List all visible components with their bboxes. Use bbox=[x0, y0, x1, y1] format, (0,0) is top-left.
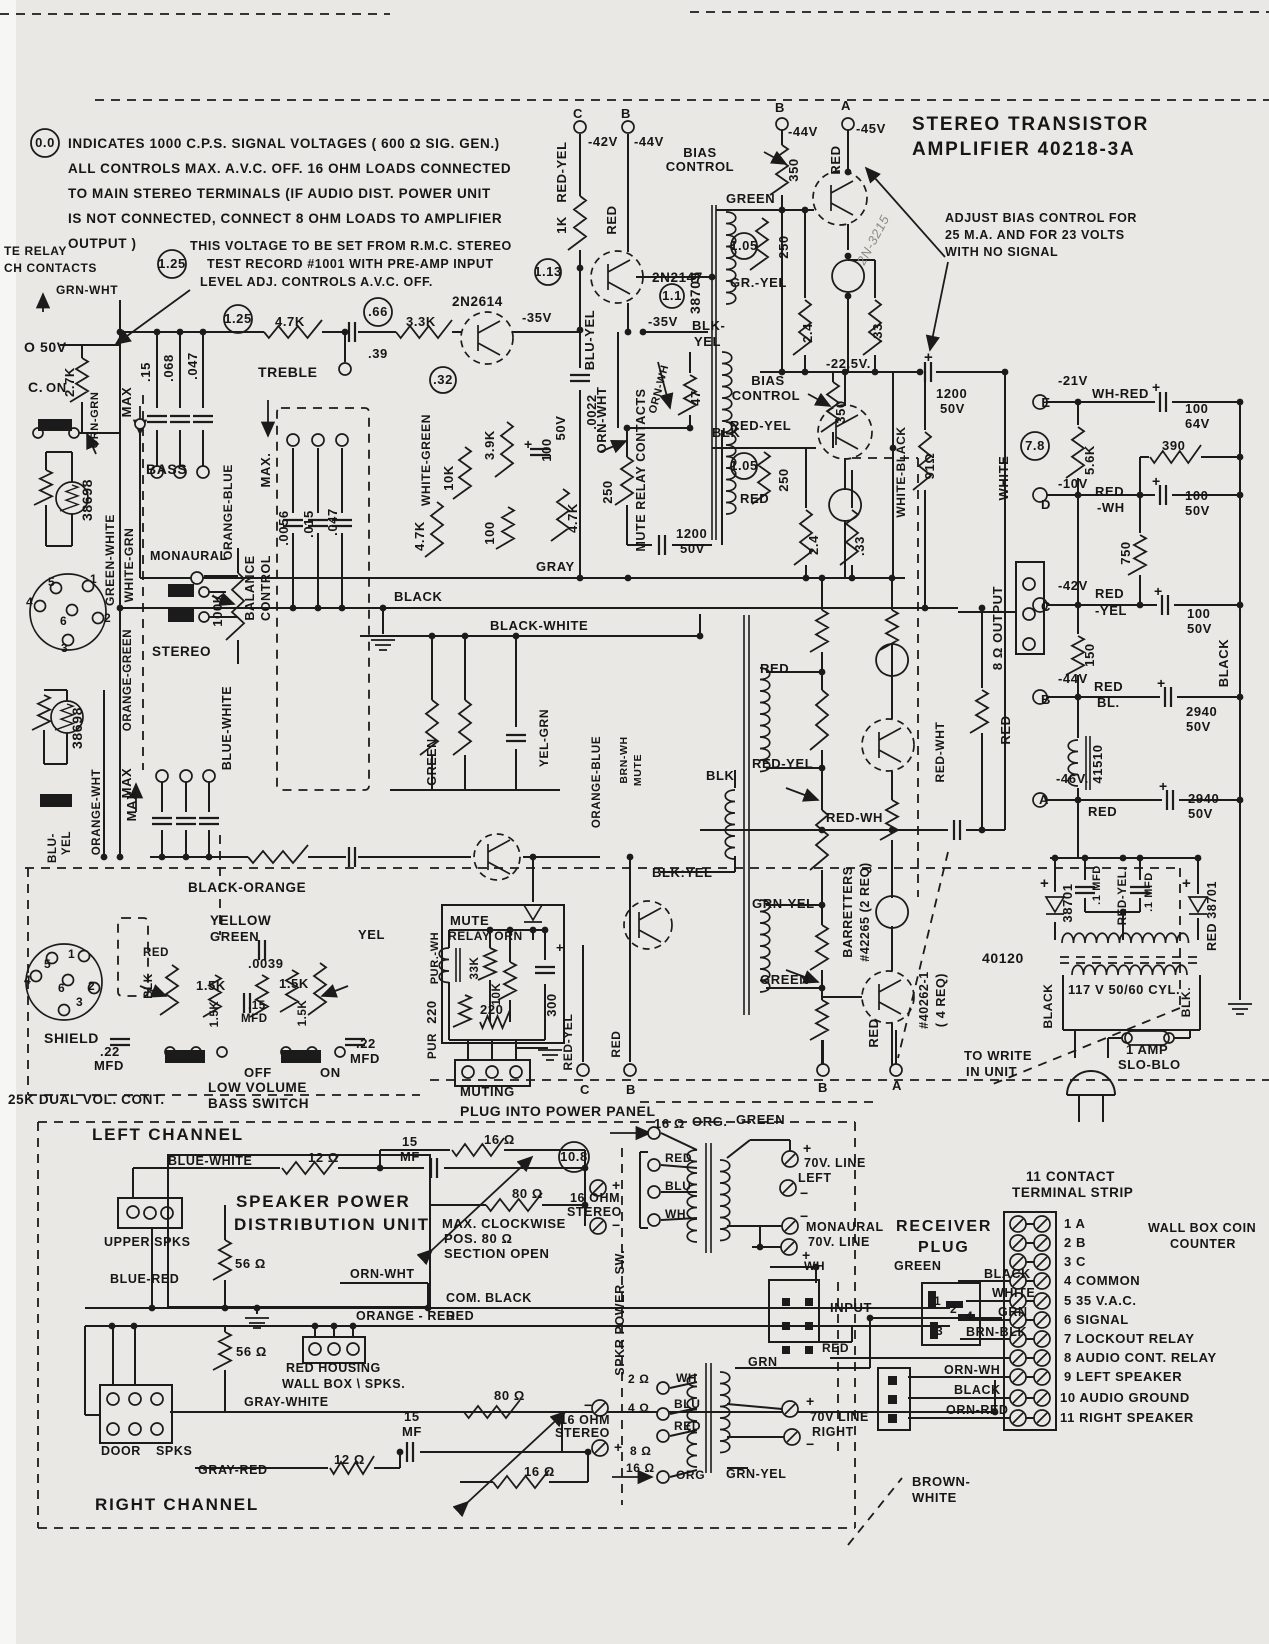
schematic-label: STEREO bbox=[555, 1426, 610, 1440]
schematic-label: WHITE bbox=[912, 1490, 957, 1505]
schematic-label: IN UNIT bbox=[966, 1064, 1017, 1079]
schematic-label: MONAURAL bbox=[150, 549, 228, 563]
schematic-label: MONAURAL bbox=[806, 1220, 884, 1234]
schematic-label: WALL BOX \ SPKS. bbox=[282, 1377, 405, 1391]
schematic-label: 3.3K bbox=[406, 314, 436, 329]
schematic-label: ON bbox=[320, 1065, 341, 1080]
schematic-label: RED bbox=[609, 1030, 623, 1057]
schematic-label: RED bbox=[604, 205, 619, 234]
schematic-label: COM. BLACK bbox=[446, 1291, 532, 1305]
section-spdu-2: DISTRIBUTION UNIT bbox=[234, 1215, 430, 1234]
schematic-label: BRN-WH bbox=[618, 736, 630, 783]
schematic-label: 50V bbox=[680, 541, 705, 556]
schematic-label: 10K bbox=[441, 465, 456, 491]
note-voltage-2: TEST RECORD #1001 WITH PRE-AMP INPUT bbox=[207, 257, 494, 271]
schematic-label: 4.7K bbox=[565, 503, 580, 533]
schematic-label: -WH bbox=[1097, 500, 1125, 515]
schematic-label: 15 bbox=[404, 1409, 420, 1424]
schematic-label: 2N2147 bbox=[652, 270, 703, 285]
schematic-label: MAX. bbox=[258, 453, 273, 488]
terminal-row-2: 2 B bbox=[1064, 1235, 1086, 1250]
schematic-label: 1.05 bbox=[730, 238, 758, 253]
schematic-label: RED bbox=[665, 1151, 692, 1165]
schematic-label: .32 bbox=[433, 372, 453, 387]
schematic-label: RED bbox=[446, 1309, 474, 1323]
schematic-label: 117 V 50/60 CYL. bbox=[1068, 982, 1180, 997]
schematic-label: 2 bbox=[950, 1302, 957, 1316]
schematic-label: 8 Ω bbox=[630, 1444, 651, 1458]
schematic-label: 1.25 bbox=[158, 256, 186, 271]
schematic-label: .0039 bbox=[248, 956, 284, 971]
schematic-label: − bbox=[612, 1217, 621, 1233]
schematic-label: 2.4 bbox=[800, 323, 815, 343]
schematic-label: 15 bbox=[402, 1134, 418, 1149]
note-signal-1: INDICATES 1000 C.P.S. SIGNAL VOLTAGES ( … bbox=[68, 136, 500, 151]
schematic-label: 250 bbox=[600, 480, 615, 504]
note-signal-3: TO MAIN STEREO TERMINALS (IF AUDIO DIST.… bbox=[68, 186, 491, 201]
schematic-label: GRN bbox=[748, 1355, 778, 1369]
schematic-label: INPUT bbox=[830, 1300, 872, 1315]
schematic-label: 8 Ω OUTPUT bbox=[990, 586, 1005, 670]
schematic-label: BLK bbox=[712, 425, 741, 440]
note-voltage-3: LEVEL ADJ. CONTROLS A.V.C. OFF. bbox=[200, 275, 433, 289]
schematic-label: -42V bbox=[1058, 578, 1088, 593]
schematic-label: RED 38701 bbox=[1205, 881, 1219, 951]
schematic-label: RED bbox=[740, 491, 769, 506]
schematic-label: LEFT bbox=[798, 1171, 832, 1185]
schematic-label: -10V bbox=[1058, 476, 1088, 491]
schematic-label: + bbox=[556, 940, 564, 955]
schematic-label: MUTE bbox=[450, 913, 489, 928]
schematic-label: 220 bbox=[424, 1000, 439, 1024]
schematic-label: 16 OHM bbox=[570, 1191, 620, 1205]
schematic-label: 1.25 bbox=[224, 311, 252, 326]
section-spdu-1: SPEAKER POWER bbox=[236, 1192, 411, 1211]
schematic-label: YEL bbox=[61, 831, 73, 855]
schematic-label: -44V bbox=[1058, 671, 1088, 686]
schematic-label: BLK bbox=[143, 973, 155, 999]
schematic-label: 3 bbox=[61, 641, 68, 655]
schematic-label: BLU- bbox=[47, 833, 59, 863]
schematic-label: SECTION OPEN bbox=[444, 1246, 549, 1261]
schematic-label: GREEN bbox=[726, 191, 775, 206]
schematic-label: E bbox=[1041, 395, 1050, 410]
schematic-label: GREEN bbox=[760, 972, 809, 987]
schematic-label: COUNTER bbox=[1170, 1237, 1236, 1251]
schematic-label: WHITE bbox=[996, 456, 1011, 501]
schematic-label: PUR.-WH bbox=[429, 932, 441, 984]
schematic-label: BASS bbox=[146, 461, 187, 477]
schematic-label: BASS SWITCH bbox=[208, 1096, 309, 1111]
schematic-label: POS. 80 Ω bbox=[444, 1231, 513, 1246]
schematic-label: 38698 bbox=[79, 479, 95, 521]
schematic-label: + bbox=[614, 1439, 623, 1455]
schematic-label: GRN-YEL bbox=[752, 896, 815, 911]
schematic-label: GRAY-RED bbox=[198, 1463, 268, 1477]
schematic-label: #40262-1 bbox=[917, 971, 931, 1029]
schematic-label: 250 bbox=[776, 468, 791, 492]
schematic-label: + bbox=[1040, 875, 1049, 892]
section-plug-power-panel: PLUG INTO POWER PANEL bbox=[460, 1103, 656, 1119]
schematic-label: TREBLE bbox=[258, 364, 318, 380]
schematic-label: BALANCE bbox=[243, 555, 257, 620]
schematic-label: 1200 bbox=[936, 386, 967, 401]
schematic-label: .068 bbox=[161, 354, 176, 382]
schematic-label: SPKR POWER bbox=[613, 1284, 627, 1375]
schematic-label: GREEN bbox=[894, 1259, 941, 1273]
schematic-label: 70V LINE bbox=[810, 1410, 869, 1424]
note-signal-4: IS NOT CONNECTED, CONNECT 8 OHM LOADS TO… bbox=[68, 211, 502, 226]
terminal-row-5: 5 35 V.A.C. bbox=[1064, 1293, 1137, 1308]
schematic-label: 16 Ω bbox=[524, 1464, 555, 1479]
schematic-label: 3.9K bbox=[482, 430, 497, 460]
schematic-label: 2 Ω bbox=[628, 1372, 649, 1386]
schematic-label: GREEN bbox=[210, 929, 259, 944]
schematic-label: MUTE RELAY CONTACTS bbox=[634, 388, 648, 551]
schematic-label: BIAS bbox=[751, 373, 784, 388]
schematic-label: ORANGE-BLUE bbox=[591, 736, 603, 828]
schematic-label: 100 bbox=[539, 438, 554, 462]
schematic-label: RED bbox=[1095, 586, 1124, 601]
schematic-label: A bbox=[841, 98, 851, 113]
schematic-label: 100 bbox=[1187, 606, 1211, 621]
schematic-label: -44V bbox=[788, 124, 818, 139]
terminal-row-7: 7 LOCKOUT RELAY bbox=[1064, 1331, 1195, 1346]
schematic-label: 2 bbox=[88, 979, 95, 993]
schematic-label: ORN-WHT bbox=[350, 1267, 415, 1281]
schematic-label: MAX bbox=[124, 791, 139, 822]
schematic-title-line1: STEREO TRANSISTOR bbox=[912, 114, 1149, 135]
terminal-row-11: 11 RIGHT SPEAKER bbox=[1060, 1410, 1194, 1425]
schematic-label: − bbox=[584, 1397, 593, 1413]
schematic-label: 1.1 bbox=[662, 288, 682, 303]
schematic-label: BLK:YEL bbox=[652, 865, 713, 880]
schematic-label: BLACK bbox=[954, 1383, 1001, 1397]
terminal-row-1: 1 A bbox=[1064, 1216, 1086, 1231]
schematic-label: + bbox=[924, 349, 933, 366]
schematic-label: 3 bbox=[936, 1324, 943, 1338]
schematic-label: RED bbox=[1094, 679, 1123, 694]
schematic-label: RED HOUSING bbox=[286, 1361, 381, 1375]
schematic-label: GREEN-WHITE bbox=[103, 514, 117, 606]
schematic-label: DOOR bbox=[101, 1444, 141, 1458]
schematic-label: .33 bbox=[870, 323, 885, 343]
section-receiver-plug-2: PLUG bbox=[918, 1239, 970, 1256]
schematic-label: 2.7K bbox=[62, 367, 77, 397]
schematic-label: 1.5K bbox=[209, 1001, 221, 1028]
section-right-channel: RIGHT CHANNEL bbox=[95, 1495, 259, 1514]
schematic-label: 16 OHM bbox=[560, 1413, 610, 1427]
terminal-row-6: 6 SIGNAL bbox=[1064, 1312, 1129, 1327]
schematic-label: -45V bbox=[856, 121, 886, 136]
schematic-label: GR.-YEL bbox=[730, 275, 787, 290]
schematic-label: + bbox=[1182, 875, 1191, 892]
schematic-label: 80 Ω bbox=[512, 1186, 543, 1201]
schematic-label: GRAY-WHITE bbox=[244, 1395, 329, 1409]
schematic-label: BL. bbox=[1097, 695, 1120, 710]
schematic-label: 100 bbox=[1185, 401, 1209, 416]
schematic-label: 38701 bbox=[1060, 883, 1075, 922]
schematic-label: WALL BOX COIN bbox=[1148, 1221, 1256, 1235]
schematic-label: BLUE-WHITE bbox=[168, 1154, 252, 1168]
schematic-label: 4.7K bbox=[412, 521, 427, 551]
schematic-label: 50V bbox=[1187, 621, 1212, 636]
terminal-row-3: 3 C bbox=[1064, 1254, 1086, 1269]
schematic-label: A bbox=[1039, 792, 1049, 807]
schematic-label: 12 Ω bbox=[334, 1452, 365, 1467]
schematic-label: − bbox=[800, 1185, 809, 1201]
schematic-label: WH bbox=[665, 1207, 686, 1221]
schematic-label: 16 Ω bbox=[484, 1132, 515, 1147]
schematic-label: -46V. bbox=[1056, 771, 1089, 786]
schematic-label: SHIELD bbox=[44, 1030, 99, 1046]
schematic-label: ORG bbox=[676, 1468, 705, 1482]
schematic-label: + bbox=[806, 1393, 815, 1409]
schematic-label: GRN-YEL bbox=[726, 1467, 786, 1481]
schematic-label: ORN-RED bbox=[946, 1403, 1009, 1417]
schematic-label: 12 Ω bbox=[308, 1150, 339, 1165]
schematic-label: RED bbox=[998, 715, 1013, 744]
schematic-label: B bbox=[1041, 692, 1051, 707]
schematic-label: ORANGE - RED bbox=[356, 1309, 456, 1323]
section-left-channel: LEFT CHANNEL bbox=[92, 1125, 244, 1144]
note-signal-5: OUTPUT ) bbox=[68, 236, 137, 251]
schematic-label: 390 bbox=[1162, 438, 1186, 453]
schematic-label: O 50V bbox=[24, 339, 67, 355]
schematic-label: .22 bbox=[356, 1036, 376, 1051]
schematic-label: ORN-WH bbox=[944, 1363, 1000, 1377]
schematic-label: .66 bbox=[368, 304, 388, 319]
schematic-label: -22.5V. bbox=[826, 356, 871, 371]
schematic-label: RED-WH bbox=[826, 810, 883, 825]
schematic-label: 38698 bbox=[69, 707, 85, 749]
schematic-label: RED bbox=[760, 661, 789, 676]
schematic-label: 250 bbox=[776, 235, 791, 259]
schematic-label: .33 bbox=[852, 536, 867, 556]
schematic-label: + bbox=[1152, 379, 1161, 395]
schematic-label: -35V bbox=[522, 310, 552, 325]
schematic-label: 6 bbox=[58, 981, 65, 995]
schematic-label: .39 bbox=[368, 346, 388, 361]
schematic-label: WHITE-GRN bbox=[122, 528, 136, 603]
schematic-label: BLU bbox=[665, 1179, 691, 1193]
schematic-label: WH-RED bbox=[1092, 386, 1149, 401]
schematic-label: SPKS bbox=[156, 1444, 192, 1458]
schematic-label: MF bbox=[402, 1424, 422, 1439]
schematic-label: .15 bbox=[138, 362, 153, 382]
note-voltage-1: THIS VOLTAGE TO BE SET FROM R.M.C. STERE… bbox=[190, 239, 512, 253]
schematic-label: GRN bbox=[998, 1305, 1028, 1319]
schematic-label: 25K DUAL VOL. CONT. bbox=[8, 1092, 165, 1107]
schematic-label: RIGHT bbox=[812, 1425, 854, 1439]
schematic-label: .0022 bbox=[584, 394, 599, 430]
schematic-label: 80 Ω bbox=[494, 1388, 525, 1403]
schematic-label: 7.8 bbox=[1025, 438, 1045, 453]
schematic-label: .22 bbox=[100, 1044, 120, 1059]
schematic-label: WH bbox=[804, 1259, 825, 1273]
schematic-label: RELAY ORN bbox=[448, 929, 523, 943]
schematic-label: 56 Ω bbox=[235, 1256, 266, 1271]
wires-layer bbox=[43, 130, 1240, 1502]
schematic-label: 1K bbox=[554, 216, 569, 234]
schematic-label: OFF bbox=[244, 1065, 272, 1080]
schematic-label: YELLOW bbox=[210, 913, 271, 928]
schematic-label: 2 bbox=[104, 611, 111, 625]
schematic-label: 64V bbox=[1185, 416, 1210, 431]
schematic-label: SW. bbox=[613, 1250, 627, 1275]
schematic-label: RED bbox=[1095, 484, 1124, 499]
note-bias-2: 25 M.A. AND FOR 23 VOLTS bbox=[945, 228, 1125, 242]
schematic-label: B bbox=[626, 1082, 636, 1097]
schematic-label: .047 bbox=[325, 508, 340, 536]
schematic-label: BLUE-WHITE bbox=[220, 686, 234, 770]
schematic-label: WHITE bbox=[992, 1286, 1035, 1300]
schematic-label: MFD bbox=[241, 1013, 268, 1025]
schematic-label: 50V bbox=[1185, 503, 1210, 518]
schematic-label: 1.5K bbox=[297, 1000, 309, 1027]
schematic-label: 91Ω bbox=[922, 453, 937, 480]
schematic-label: A bbox=[892, 1078, 902, 1093]
schematic-label: 1.13 bbox=[534, 264, 562, 279]
schematic-label: 50V bbox=[1188, 806, 1213, 821]
schematic-label: WHITE-GREEN bbox=[419, 414, 433, 506]
schematic-label: ORN-WH bbox=[647, 363, 672, 414]
note-signal-2: ALL CONTROLS MAX. A.V.C. OFF. 16 OHM LOA… bbox=[68, 161, 511, 176]
schematic-label: RED-YEL. bbox=[1117, 867, 1129, 925]
schematic-label: 6 bbox=[60, 614, 67, 628]
schematic-label: BLK bbox=[706, 768, 735, 783]
schematic-label: C bbox=[580, 1082, 590, 1097]
schematic-label: 16 Ω bbox=[626, 1461, 655, 1475]
schematic-label: WHITE-BLACK bbox=[894, 426, 908, 517]
note-bias-3: WITH NO SIGNAL bbox=[945, 245, 1058, 259]
schematic-label: 350 bbox=[833, 400, 848, 424]
schematic-label: .1 MFD bbox=[1143, 872, 1155, 912]
schematic-label: 1.05 bbox=[730, 458, 758, 473]
schematic-label: 2N2614 bbox=[452, 294, 503, 309]
schematic-label: TE RELAY bbox=[4, 244, 67, 258]
schematic-label: RED-YEL bbox=[554, 141, 569, 202]
schematic-label: ORN-GRN bbox=[89, 392, 101, 449]
scanned-schematic-page: STEREO TRANSISTOR AMPLIFIER 40218-3A 0.0… bbox=[0, 0, 1269, 1644]
schematic-label: SLO-BLO bbox=[1118, 1057, 1181, 1072]
schematic-label: CONTROL bbox=[732, 388, 800, 403]
schematic-label: BLACK-ORANGE bbox=[188, 880, 306, 895]
schematic-label: .0056 bbox=[276, 510, 291, 546]
schematic-label: MUTING bbox=[460, 1084, 515, 1099]
schematic-label: CONTROL bbox=[666, 159, 734, 174]
schematic-label: BLK. bbox=[1179, 987, 1193, 1017]
schematic-label: UPPER SPKS bbox=[104, 1235, 191, 1249]
schematic-label: PUR bbox=[427, 1033, 439, 1059]
schematic-label: 2940 bbox=[1186, 704, 1217, 719]
schematic-label: LOW VOLUME bbox=[208, 1080, 307, 1095]
schematic-label: MFD bbox=[94, 1058, 124, 1073]
terminal-row-4: 4 COMMON bbox=[1064, 1273, 1140, 1288]
schematic-label: + bbox=[1152, 473, 1161, 489]
schematic-label: 70V. LINE bbox=[808, 1235, 870, 1249]
note-bias-1: ADJUST BIAS CONTROL FOR bbox=[945, 211, 1137, 225]
schematic-label: MAX. CLOCKWISE bbox=[442, 1216, 566, 1231]
schematic-label: GREEN bbox=[425, 738, 439, 785]
schematic-label: GRAY bbox=[536, 559, 575, 574]
schematic-label: 1 bbox=[934, 1294, 941, 1308]
schematic-label: 16 Ω bbox=[654, 1116, 685, 1131]
schematic-label: 300 bbox=[544, 993, 559, 1017]
schematic-label: WH bbox=[676, 1371, 697, 1385]
schematic-label: RED-YEL bbox=[752, 756, 813, 771]
schematic-label: 100 bbox=[1185, 488, 1209, 503]
schematic-label: -YEL bbox=[1095, 603, 1127, 618]
terminal-row-8: 8 AUDIO CONT. RELAY bbox=[1064, 1350, 1217, 1365]
schematic-label: CONTROL bbox=[259, 555, 273, 621]
schematic-label: BLACK bbox=[1041, 984, 1055, 1029]
schematic-label: BLU-YEL bbox=[582, 310, 597, 371]
schematic-label: ORANGE-GREEN bbox=[122, 629, 134, 731]
schematic-label: 5 bbox=[48, 575, 55, 589]
schematic-label: + bbox=[1157, 675, 1166, 691]
schematic-label: -21V bbox=[1058, 373, 1088, 388]
schematic-label: 5.6K bbox=[1082, 445, 1097, 475]
schematic-label: BLACK bbox=[1216, 639, 1231, 688]
schematic-label: 4 bbox=[24, 973, 31, 987]
schematic-label: 41510 bbox=[1090, 744, 1105, 783]
schematic-label: BLK- bbox=[692, 318, 725, 333]
schematic-label: RED bbox=[828, 145, 843, 174]
schematic-label: RED-WHT bbox=[933, 722, 947, 783]
schematic-label: -44V bbox=[634, 134, 664, 149]
schematic-label: TO WRITE bbox=[964, 1048, 1032, 1063]
schematic-label: 56 Ω bbox=[236, 1344, 267, 1359]
schematic-label: .047 bbox=[185, 352, 200, 380]
schematic-label: YEL bbox=[694, 334, 721, 349]
schematic-label: 1 AMP bbox=[1126, 1042, 1168, 1057]
schematic-label: -42V bbox=[588, 134, 618, 149]
schematic-label: BLUE-RED bbox=[110, 1272, 179, 1286]
schematic-label: CH CONTACTS bbox=[4, 261, 97, 275]
schematic-label: 50V bbox=[940, 401, 965, 416]
schematic-label: RED bbox=[143, 947, 169, 959]
solid-symbols-layer bbox=[38, 169, 1243, 1456]
schematic-label: .015 bbox=[301, 510, 316, 538]
schematic-label: 1.5K bbox=[196, 978, 226, 993]
schematic-label: − bbox=[806, 1436, 815, 1452]
schematic-label: MF bbox=[400, 1149, 420, 1164]
schematic-label: YEL bbox=[358, 927, 385, 942]
schematic-canvas: STEREO TRANSISTOR AMPLIFIER 40218-3A 0.0… bbox=[0, 0, 1269, 1644]
schematic-label: -35V bbox=[648, 314, 678, 329]
schematic-label: + bbox=[803, 1140, 812, 1156]
schematic-label: 3 bbox=[76, 995, 83, 1009]
schematic-label: 150 bbox=[1082, 643, 1097, 667]
terminal-strip-heading-2: TERMINAL STRIP bbox=[1012, 1185, 1133, 1200]
schematic-label: MAX bbox=[119, 387, 134, 418]
schematic-label: .1 MFD bbox=[1091, 865, 1103, 905]
schematic-label: C. bbox=[28, 379, 43, 395]
schematic-label: ORANGE-WHT bbox=[91, 769, 103, 856]
schematic-label: YEL-GRN bbox=[537, 709, 551, 767]
schematic-label: 750 bbox=[1118, 541, 1133, 565]
schematic-label: + bbox=[524, 436, 533, 452]
schematic-label: + bbox=[1154, 583, 1163, 599]
schematic-label: D bbox=[1041, 497, 1051, 512]
schematic-label: + bbox=[1159, 778, 1168, 794]
schematic-label: 70V. LINE bbox=[804, 1156, 866, 1170]
schematic-label: 1.5K bbox=[279, 976, 309, 991]
schematic-label: GRN-WHT bbox=[56, 283, 118, 297]
schematic-label: BARRETTERS bbox=[841, 866, 855, 957]
schematic-label: 2.4 bbox=[806, 535, 821, 555]
